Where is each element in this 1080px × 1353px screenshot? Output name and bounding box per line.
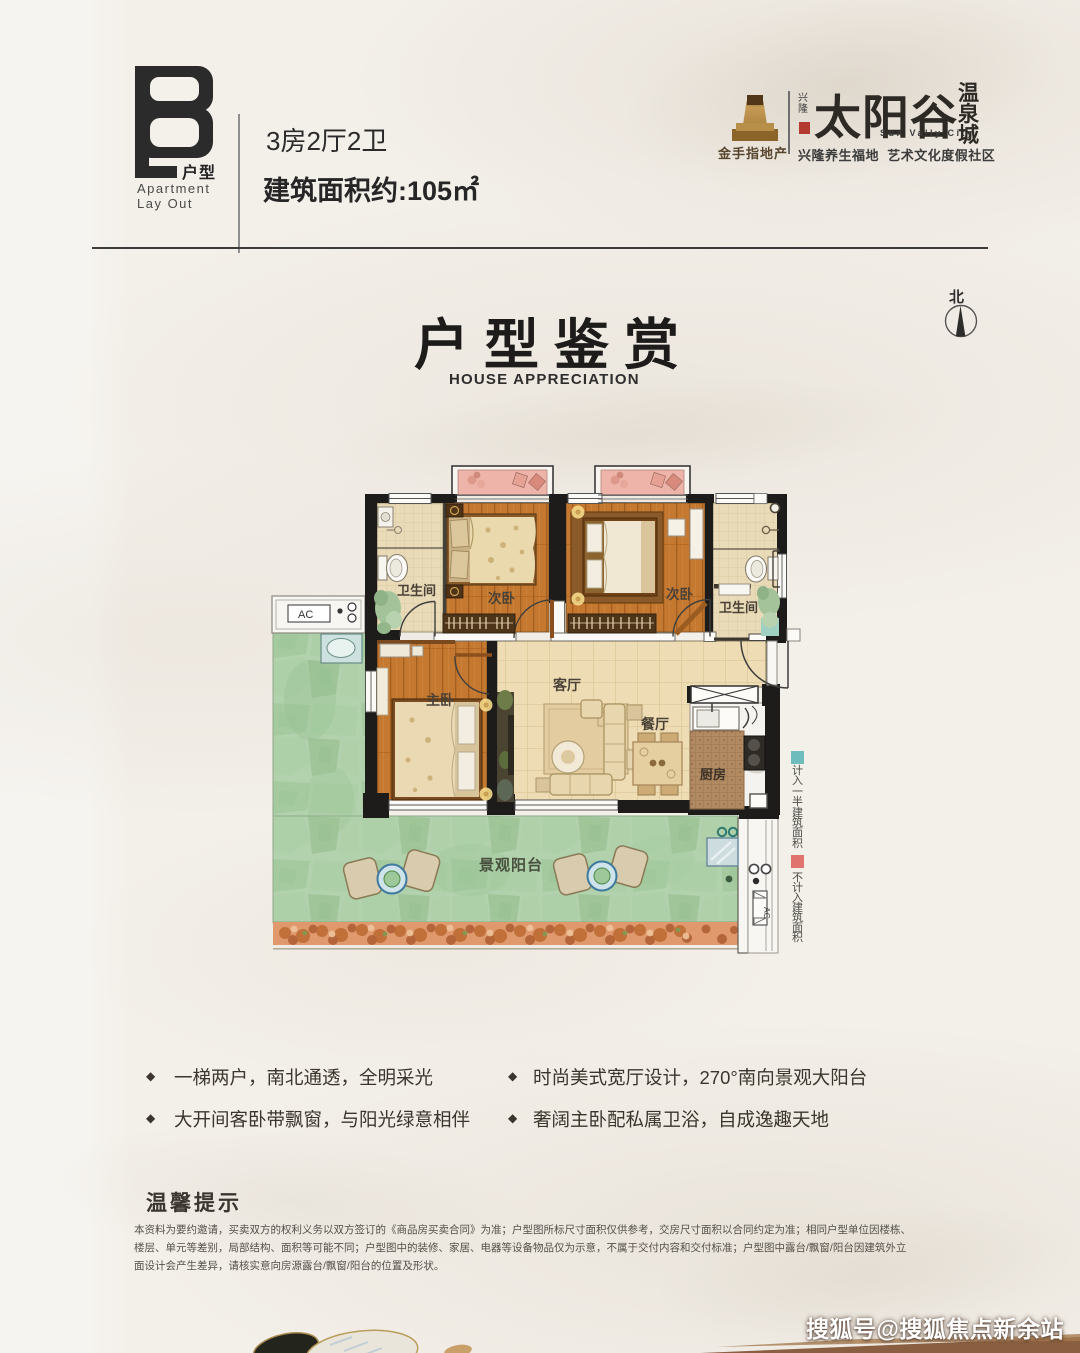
svg-text:次卧: 次卧: [666, 586, 694, 602]
svg-text:客厅: 客厅: [552, 677, 581, 693]
svg-text:卫生间: 卫生间: [719, 600, 758, 615]
svg-text:AC: AC: [298, 609, 313, 621]
svg-text:景观阳台: 景观阳台: [479, 856, 543, 874]
svg-text:主卧: 主卧: [426, 692, 454, 708]
svg-text:餐厅: 餐厅: [640, 716, 669, 732]
svg-text:厨房: 厨房: [700, 767, 726, 782]
svg-text:次卧: 次卧: [488, 590, 516, 606]
svg-text:卫生间: 卫生间: [397, 583, 436, 598]
svg-text:北: 北: [949, 289, 964, 306]
svg-text:AC: AC: [762, 907, 772, 919]
